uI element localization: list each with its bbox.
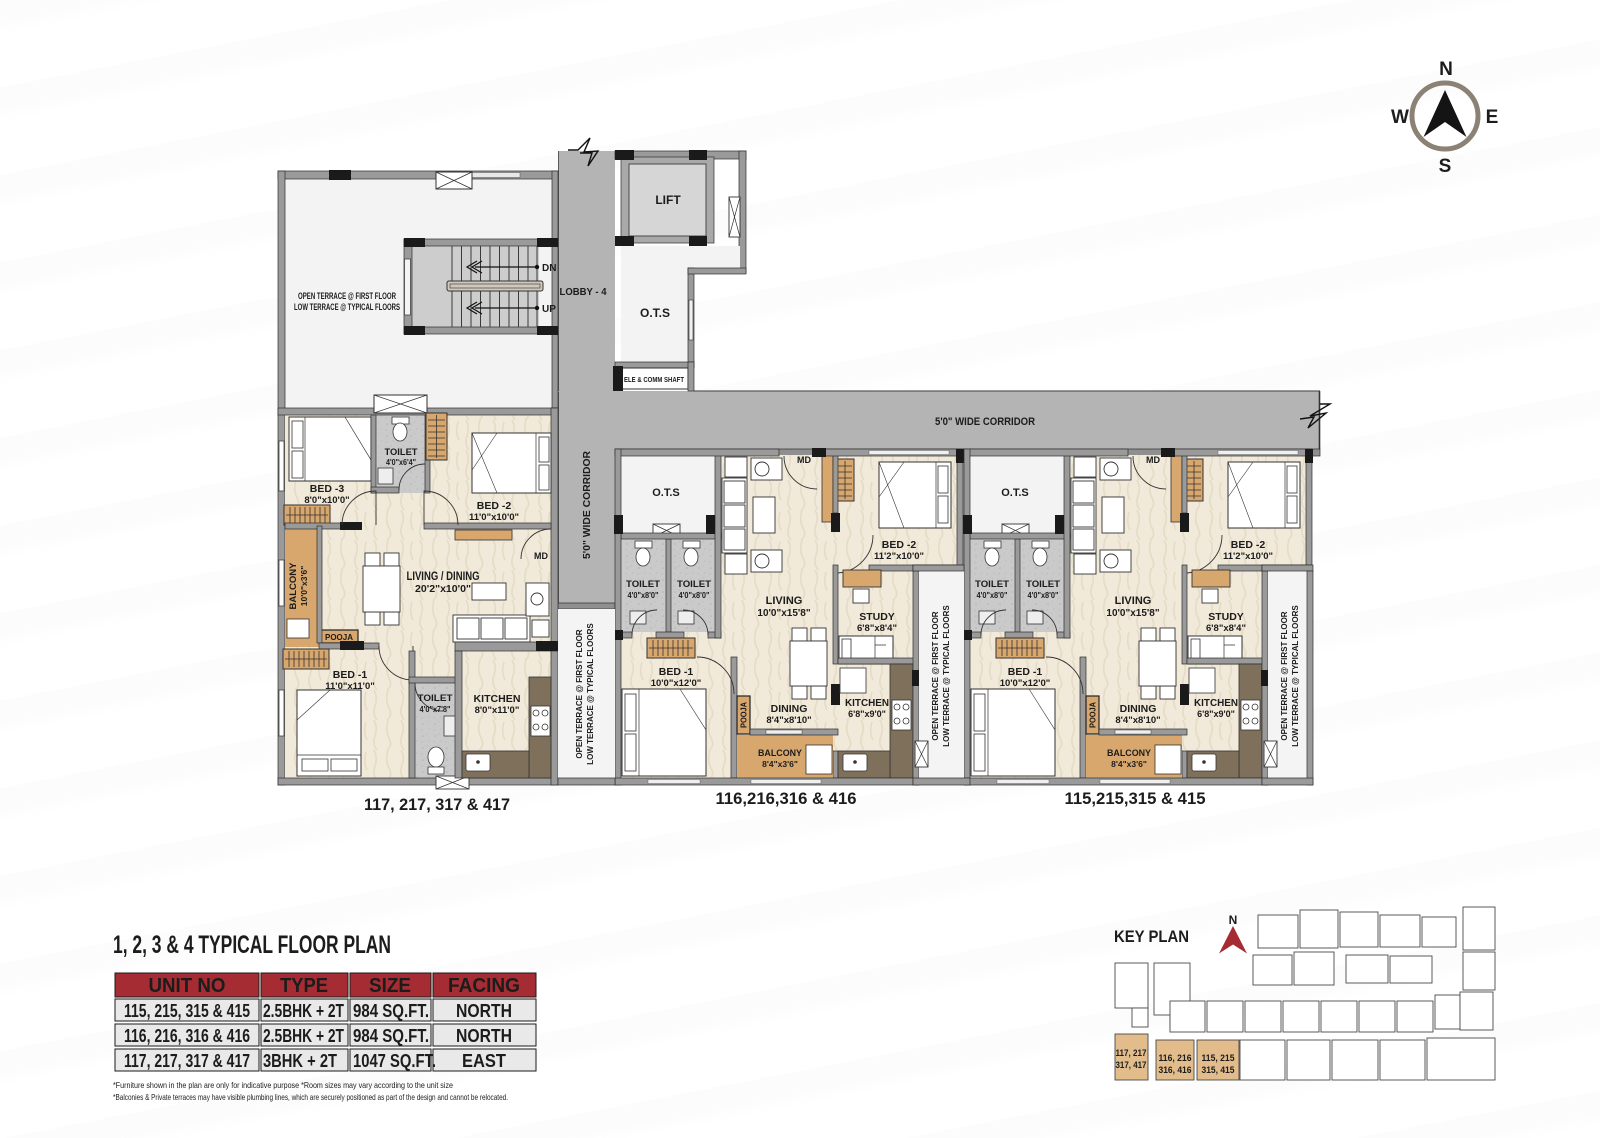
svg-text:317, 417: 317, 417	[1116, 1060, 1147, 1070]
svg-text:2.5BHK + 2T: 2.5BHK + 2T	[263, 1026, 344, 1046]
svg-text:1047 SQ.FT.: 1047 SQ.FT.	[353, 1051, 436, 1071]
svg-text:N: N	[1439, 59, 1453, 80]
svg-text:8'0"x11'0": 8'0"x11'0"	[475, 705, 520, 716]
svg-text:984 SQ.FT.: 984 SQ.FT.	[353, 1026, 429, 1046]
svg-text:W: W	[1391, 107, 1409, 128]
svg-text:8'4"x8'10": 8'4"x8'10"	[766, 715, 811, 726]
svg-text:*Furniture shown in the plan a: *Furniture shown in the plan are only fo…	[113, 1080, 453, 1090]
svg-text:3BHK + 2T: 3BHK + 2T	[263, 1051, 337, 1071]
svg-text:LIFT: LIFT	[655, 193, 681, 207]
svg-text:10'0"x15'8": 10'0"x15'8"	[757, 608, 810, 619]
svg-text:117, 217: 117, 217	[1116, 1048, 1147, 1058]
svg-text:*Balconies & Private terraces: *Balconies & Private terraces may have v…	[113, 1092, 508, 1102]
svg-text:20'2"x10'0": 20'2"x10'0"	[415, 583, 471, 595]
svg-text:KITCHEN: KITCHEN	[845, 698, 889, 709]
svg-text:OPEN TERRACE @ FIRST FLOOR: OPEN TERRACE @ FIRST FLOOR	[298, 291, 396, 302]
svg-text:UP: UP	[542, 304, 556, 315]
svg-text:115, 215: 115, 215	[1202, 1053, 1235, 1063]
svg-text:115,215,315 & 415: 115,215,315 & 415	[1065, 789, 1206, 808]
svg-text:POOJA: POOJA	[325, 632, 353, 642]
svg-text:4'0"x8'0": 4'0"x8'0"	[628, 590, 659, 600]
svg-text:BED -2: BED -2	[882, 539, 917, 551]
svg-text:LIVING: LIVING	[766, 595, 803, 607]
svg-text:MD: MD	[797, 455, 811, 465]
svg-text:984 SQ.FT.: 984 SQ.FT.	[353, 1001, 429, 1021]
svg-text:BALCONY: BALCONY	[288, 562, 299, 610]
svg-text:NORTH: NORTH	[456, 1026, 512, 1046]
svg-text:DN: DN	[542, 263, 556, 274]
svg-text:11'2"x10'0": 11'2"x10'0"	[874, 551, 924, 562]
svg-text:BED -2: BED -2	[477, 500, 512, 512]
svg-text:TYPE: TYPE	[280, 975, 328, 997]
svg-text:ELE & COMM SHAFT: ELE & COMM SHAFT	[624, 375, 684, 384]
svg-text:8'0"x10'0": 8'0"x10'0"	[304, 495, 349, 506]
svg-text:4'0"x7'8": 4'0"x7'8"	[420, 704, 451, 714]
svg-text:10'0"x3'6": 10'0"x3'6"	[299, 566, 309, 606]
svg-text:N: N	[1229, 913, 1238, 927]
svg-text:BED -1: BED -1	[659, 666, 694, 678]
svg-text:MD: MD	[534, 551, 548, 561]
svg-text:BED -3: BED -3	[310, 483, 345, 495]
svg-text:POOJA: POOJA	[740, 702, 749, 728]
svg-text:116,216,316 & 416: 116,216,316 & 416	[716, 789, 857, 808]
svg-text:S: S	[1439, 156, 1452, 177]
svg-text:116, 216, 316 & 416: 116, 216, 316 & 416	[124, 1026, 250, 1046]
svg-text:TOILET: TOILET	[677, 579, 711, 590]
svg-text:6'8"x8'4": 6'8"x8'4"	[857, 623, 897, 634]
svg-text:TOILET: TOILET	[418, 693, 453, 704]
svg-text:117, 217, 317 & 417: 117, 217, 317 & 417	[124, 1051, 250, 1071]
svg-text:5'0" WIDE CORRIDOR: 5'0" WIDE CORRIDOR	[935, 416, 1035, 428]
svg-text:LIVING / DINING: LIVING / DINING	[407, 571, 480, 583]
svg-text:KITCHEN: KITCHEN	[474, 693, 521, 705]
svg-text:OPEN TERRACE @ FIRST FLOOR: OPEN TERRACE @ FIRST FLOOR	[1280, 611, 1289, 740]
svg-text:FACING: FACING	[448, 975, 520, 997]
svg-text:UNIT NO: UNIT NO	[149, 975, 226, 997]
svg-text:TOILET: TOILET	[626, 579, 660, 590]
svg-text:2.5BHK + 2T: 2.5BHK + 2T	[263, 1001, 344, 1021]
svg-text:1, 2, 3 & 4 TYPICAL FLOOR PLAN: 1, 2, 3 & 4 TYPICAL FLOOR PLAN	[113, 931, 391, 959]
svg-text:10'0"x12'0": 10'0"x12'0"	[651, 678, 702, 689]
svg-text:116, 216: 116, 216	[1159, 1053, 1192, 1063]
svg-text:LOW TERRACE @ TYPICAL FLOORS: LOW TERRACE @ TYPICAL FLOORS	[294, 302, 400, 313]
svg-text:O.T.S: O.T.S	[640, 306, 670, 320]
svg-text:DINING: DINING	[771, 703, 808, 715]
svg-text:117, 217, 317 & 417: 117, 217, 317 & 417	[364, 795, 510, 814]
svg-text:315, 415: 315, 415	[1202, 1065, 1235, 1075]
svg-text:LOW TERRACE @ TYPICAL FLOORS: LOW TERRACE @ TYPICAL FLOORS	[586, 623, 595, 765]
svg-text:11'0"x10'0": 11'0"x10'0"	[469, 512, 519, 523]
svg-text:STUDY: STUDY	[859, 611, 895, 623]
svg-text:5'0" WIDE CORRIDOR: 5'0" WIDE CORRIDOR	[582, 450, 593, 559]
svg-text:OPEN TERRACE @ FIRST FLOOR: OPEN TERRACE @ FIRST FLOOR	[575, 629, 584, 758]
svg-text:316, 416: 316, 416	[1159, 1065, 1192, 1075]
svg-text:115, 215, 315 & 415: 115, 215, 315 & 415	[124, 1001, 250, 1021]
svg-text:O.T.S: O.T.S	[652, 487, 680, 499]
svg-text:OPEN TERRACE @ FIRST FLOOR: OPEN TERRACE @ FIRST FLOOR	[931, 611, 940, 740]
svg-text:LOW TERRACE @ TYPICAL FLOORS: LOW TERRACE @ TYPICAL FLOORS	[1291, 605, 1300, 747]
svg-text:4'0"x6'4": 4'0"x6'4"	[386, 457, 416, 467]
svg-text:8'4"x3'6": 8'4"x3'6"	[762, 759, 798, 769]
svg-text:LOW TERRACE @ TYPICAL FLOORS: LOW TERRACE @ TYPICAL FLOORS	[942, 605, 951, 747]
svg-text:EAST: EAST	[462, 1051, 506, 1071]
svg-text:LOBBY - 4: LOBBY - 4	[560, 286, 607, 298]
svg-text:KEY PLAN: KEY PLAN	[1114, 927, 1189, 946]
svg-text:NORTH: NORTH	[456, 1001, 512, 1021]
svg-text:E: E	[1486, 107, 1499, 128]
svg-text:BED -1: BED -1	[333, 669, 368, 681]
svg-text:SIZE: SIZE	[369, 975, 411, 997]
svg-text:BALCONY: BALCONY	[758, 748, 803, 759]
svg-text:6'8"x9'0": 6'8"x9'0"	[848, 709, 886, 719]
svg-text:4'0"x8'0": 4'0"x8'0"	[679, 590, 710, 600]
